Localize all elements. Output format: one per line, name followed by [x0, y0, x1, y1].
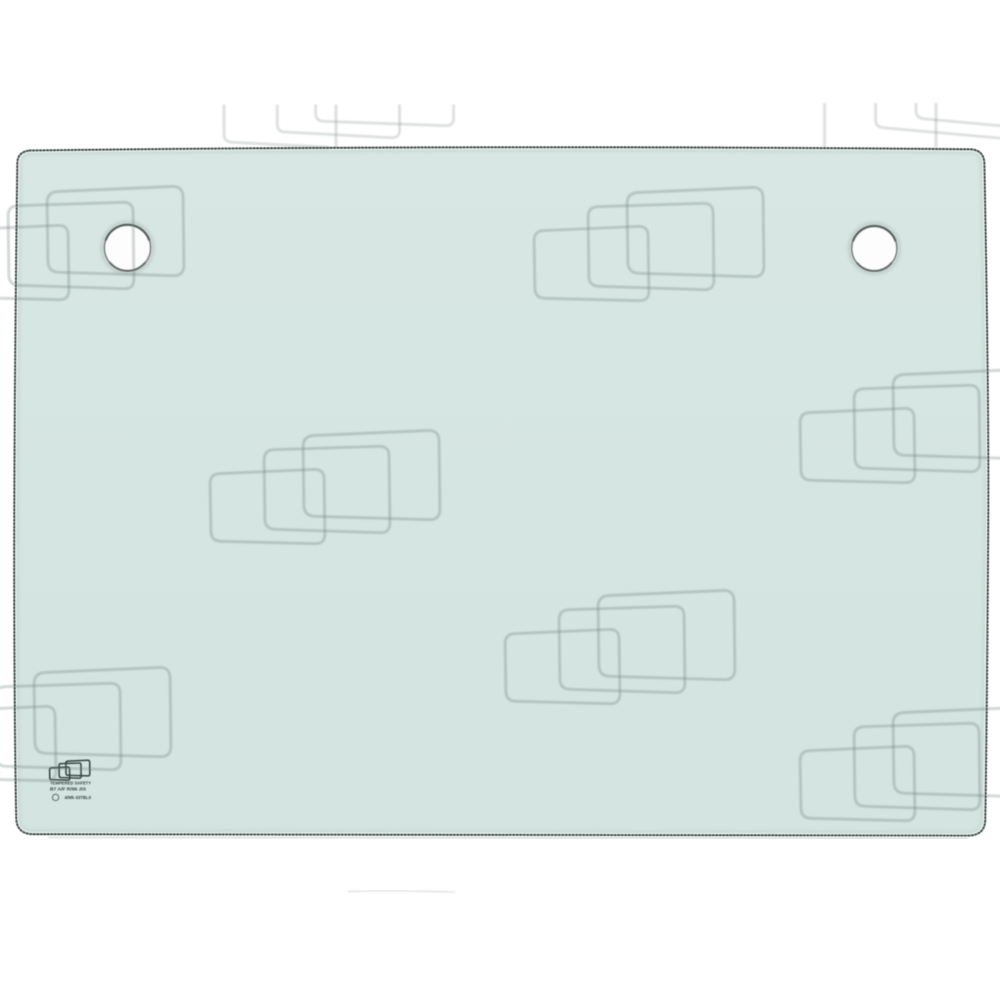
- svg-text:4/Mk 43TBL0: 4/Mk 43TBL0: [65, 795, 92, 800]
- svg-text:B7 A/F R/96 JIS: B7 A/F R/96 JIS: [50, 786, 86, 791]
- svg-text:TEMPERED SAFETY: TEMPERED SAFETY: [50, 781, 91, 786]
